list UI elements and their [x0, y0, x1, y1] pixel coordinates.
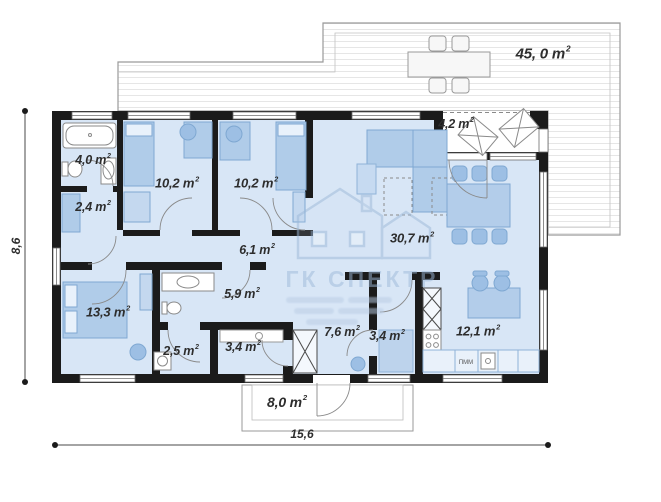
entrance-door-opening: [313, 375, 350, 383]
room-label-bedroom-2: 10,2 m2: [234, 176, 278, 191]
room-label-bedroom-1: 10,2 m2: [155, 176, 199, 191]
room-label-corridor: 7,6 m2: [324, 325, 360, 339]
room-label-closet: 2,5 m2: [163, 344, 199, 358]
floor-plan-drawing: ПММ: [0, 0, 661, 502]
kitchen-sink: [481, 353, 495, 369]
hatched-wardrobe: [293, 330, 317, 373]
room-label-porch: 4,2 m2: [438, 117, 474, 131]
kitchen-island: [468, 288, 520, 318]
room-label-kitchen: 12,1 m2: [456, 324, 500, 339]
room-label-bathroom-2: 5,9 m2: [224, 287, 260, 301]
dimension-height: 8,6: [9, 238, 23, 255]
room-label-terrace-bottom: 8,0 m2: [267, 394, 307, 410]
floor-plan-page: ПММ: [0, 0, 661, 502]
room-label-bathroom-top: 4,0 m2: [75, 153, 111, 167]
room-label-wardrobe: 3,4 m2: [369, 329, 405, 343]
stove: [423, 330, 441, 352]
dishwasher-label: ПММ: [459, 360, 473, 366]
room-label-bedroom-3: 13,3 m2: [86, 305, 130, 320]
room-label-hallway: 6,1 m2: [239, 243, 275, 257]
dimension-width: 15,6: [290, 427, 313, 441]
room-label-laundry: 3,4 m2: [225, 340, 261, 354]
room-label-terrace-top: 45, 0 m2: [516, 46, 571, 63]
room-label-hall-small: 2,4 m2: [75, 200, 111, 214]
watermark-title: ГК СПЕКТР: [286, 266, 439, 292]
bathtub: [63, 123, 116, 148]
room-label-living-room: 30,7 m2: [390, 231, 434, 246]
pouf: [351, 357, 365, 371]
